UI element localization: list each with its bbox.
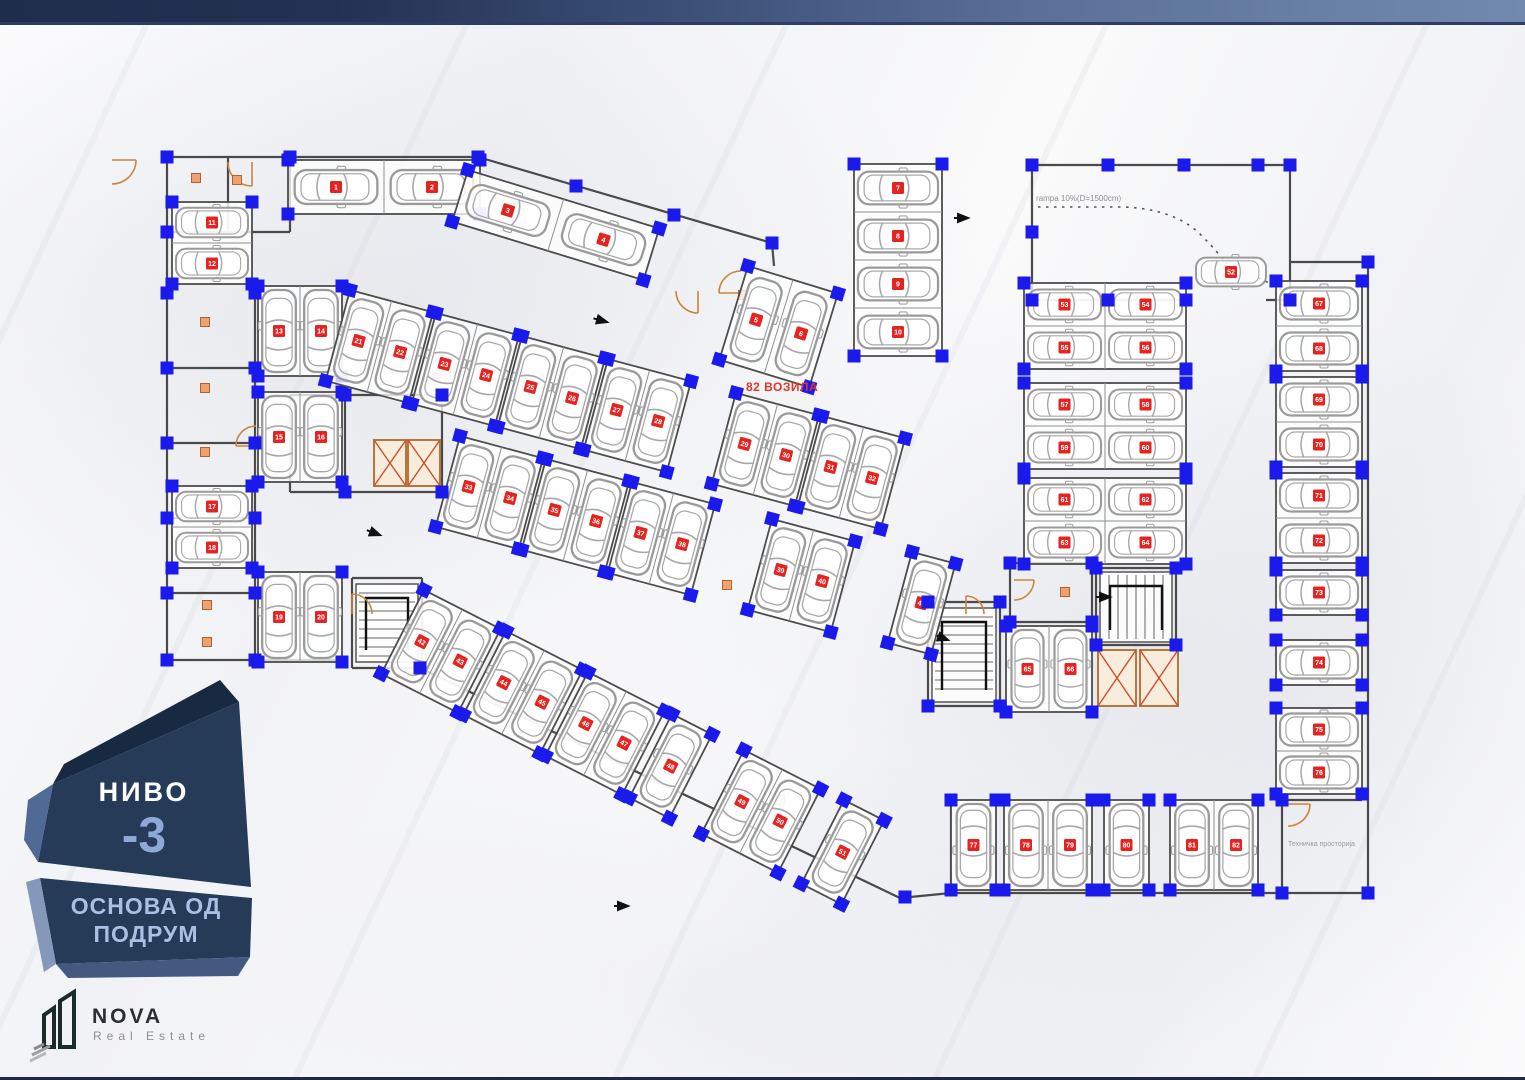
direction-arrow bbox=[614, 902, 628, 910]
structural-column bbox=[1164, 794, 1177, 807]
structural-column bbox=[166, 196, 179, 209]
elevator-shaft bbox=[1098, 650, 1136, 706]
structural-column bbox=[1180, 363, 1193, 376]
structural-column bbox=[249, 654, 262, 667]
structural-column bbox=[848, 350, 861, 363]
structural-column bbox=[1090, 639, 1103, 652]
parking-stall-group: 4950 bbox=[693, 741, 830, 881]
svg-text:72: 72 bbox=[1315, 538, 1323, 545]
structural-column bbox=[570, 180, 583, 193]
svg-text:10: 10 bbox=[894, 330, 902, 337]
structural-column bbox=[1180, 294, 1193, 307]
svg-text:9: 9 bbox=[896, 282, 900, 289]
level-value: -3 bbox=[20, 806, 268, 864]
parking-stall-group: 8182 bbox=[1164, 794, 1265, 897]
door-arc bbox=[112, 160, 136, 184]
nova-logo-icon bbox=[30, 985, 90, 1065]
structural-column bbox=[1356, 634, 1369, 647]
structural-column bbox=[336, 566, 349, 579]
structural-column bbox=[436, 389, 449, 402]
structural-column bbox=[1284, 159, 1297, 172]
svg-text:56: 56 bbox=[1142, 345, 1150, 352]
level-subtitle-line1: ОСНОВА ОД bbox=[20, 892, 272, 920]
svg-text:61: 61 bbox=[1061, 497, 1069, 504]
svg-text:70: 70 bbox=[1315, 442, 1323, 449]
parking-stall-group: 61626364 bbox=[1018, 472, 1193, 571]
structural-column bbox=[1018, 472, 1031, 485]
structural-column bbox=[249, 587, 262, 600]
structural-column bbox=[249, 437, 262, 450]
parking-stall-group: 7576 bbox=[1270, 702, 1369, 801]
structural-column bbox=[1356, 609, 1369, 622]
structural-column bbox=[1362, 887, 1375, 900]
svg-text:74: 74 bbox=[1315, 660, 1323, 667]
svg-text:12: 12 bbox=[208, 261, 216, 268]
room-label-square bbox=[1061, 588, 1070, 597]
structural-column bbox=[161, 362, 174, 375]
structural-column bbox=[1170, 562, 1183, 575]
svg-text:57: 57 bbox=[1061, 402, 1069, 409]
structural-column bbox=[1178, 159, 1191, 172]
structural-column bbox=[161, 151, 174, 164]
svg-text:82: 82 bbox=[1232, 843, 1240, 850]
structural-column bbox=[1086, 557, 1099, 570]
svg-text:16: 16 bbox=[317, 435, 325, 442]
structural-column bbox=[472, 151, 485, 164]
structural-column bbox=[998, 794, 1011, 807]
svg-text:69: 69 bbox=[1315, 397, 1323, 404]
parking-stall-group: 73 bbox=[1270, 564, 1369, 622]
parking-stall-group: 53545556 bbox=[1018, 277, 1193, 376]
parking-stall-group: 1718 bbox=[166, 480, 259, 575]
svg-text:67: 67 bbox=[1315, 301, 1323, 308]
logo-tagline: Real Estate bbox=[93, 1029, 210, 1043]
structural-column bbox=[336, 656, 349, 669]
parking-stall-group: 6566 bbox=[1000, 620, 1099, 719]
direction-arrow bbox=[954, 214, 968, 222]
door-arc bbox=[676, 291, 698, 313]
stairs bbox=[1100, 572, 1172, 642]
floor-plan-page: 1234567891011121314151617181920212223242… bbox=[0, 0, 1525, 1080]
structural-column bbox=[249, 287, 262, 300]
room-label-square bbox=[233, 176, 242, 185]
structural-column bbox=[249, 512, 262, 525]
structural-column bbox=[1018, 558, 1031, 571]
structural-column bbox=[1356, 679, 1369, 692]
structural-column bbox=[1252, 159, 1265, 172]
svg-text:54: 54 bbox=[1142, 302, 1150, 309]
structural-column bbox=[1270, 609, 1283, 622]
level-subtitle-line2: ПОДРУМ bbox=[20, 920, 272, 948]
structural-column bbox=[166, 480, 179, 493]
structural-column bbox=[936, 350, 949, 363]
door-arc bbox=[1014, 580, 1034, 600]
room-label-square bbox=[203, 601, 212, 610]
parking-stall-group: 1112 bbox=[166, 196, 259, 291]
structural-column bbox=[1086, 616, 1099, 629]
logo-name: NOVA bbox=[92, 1005, 163, 1029]
structural-column bbox=[1356, 275, 1369, 288]
svg-text:55: 55 bbox=[1061, 345, 1069, 352]
svg-text:59: 59 bbox=[1061, 445, 1069, 452]
structural-column bbox=[1284, 294, 1297, 307]
structural-column bbox=[1086, 884, 1099, 897]
direction-arrow bbox=[592, 315, 608, 326]
svg-text:64: 64 bbox=[1142, 540, 1150, 547]
svg-text:8: 8 bbox=[896, 234, 900, 241]
svg-text:53: 53 bbox=[1061, 302, 1069, 309]
structural-column bbox=[339, 486, 352, 499]
structural-column bbox=[668, 209, 681, 222]
room-label-square bbox=[201, 318, 210, 327]
vehicle-count-label: 82 ВОЗИЛА bbox=[746, 380, 818, 394]
structural-column bbox=[922, 700, 935, 713]
parking-stall-group: 1516 bbox=[252, 386, 349, 489]
structural-column bbox=[1270, 634, 1283, 647]
structural-column bbox=[436, 486, 449, 499]
ramp-label: rampa 10%(D=1500cm) bbox=[1036, 194, 1121, 203]
structural-column bbox=[1018, 377, 1031, 390]
structural-column bbox=[1018, 277, 1031, 290]
svg-text:1: 1 bbox=[334, 185, 338, 192]
parking-stall-group: 7879 bbox=[998, 794, 1099, 897]
structural-column bbox=[1270, 467, 1283, 480]
structural-column bbox=[994, 596, 1007, 609]
door-arc bbox=[1288, 804, 1310, 826]
svg-text:13: 13 bbox=[275, 329, 283, 336]
svg-text:66: 66 bbox=[1067, 667, 1075, 674]
structural-column bbox=[1276, 887, 1289, 900]
structural-column bbox=[161, 437, 174, 450]
structural-column bbox=[339, 389, 352, 402]
structural-column bbox=[945, 794, 958, 807]
structural-column bbox=[1180, 277, 1193, 290]
structural-column bbox=[1086, 794, 1099, 807]
parking-stall-group: 6768 bbox=[1270, 275, 1369, 378]
structural-column bbox=[1270, 371, 1283, 384]
svg-text:80: 80 bbox=[1123, 843, 1131, 850]
direction-arrow bbox=[365, 526, 381, 538]
structural-column bbox=[1086, 706, 1099, 719]
structural-column bbox=[922, 596, 935, 609]
structural-column bbox=[1143, 794, 1156, 807]
svg-text:76: 76 bbox=[1315, 770, 1323, 777]
structural-column bbox=[252, 566, 265, 579]
svg-text:60: 60 bbox=[1142, 445, 1150, 452]
svg-text:62: 62 bbox=[1142, 497, 1150, 504]
structural-column bbox=[766, 237, 779, 250]
structural-column bbox=[161, 587, 174, 600]
structural-column bbox=[848, 158, 861, 171]
svg-text:11: 11 bbox=[208, 220, 216, 227]
structural-column bbox=[1362, 256, 1375, 269]
svg-text:58: 58 bbox=[1142, 402, 1150, 409]
parking-stall-group: 74 bbox=[1270, 634, 1369, 692]
elevator-shaft bbox=[408, 440, 440, 486]
svg-text:19: 19 bbox=[275, 615, 283, 622]
ramp-path bbox=[1038, 207, 1226, 264]
structural-column bbox=[998, 884, 1011, 897]
tech-room-label: Техничка просторија bbox=[1288, 841, 1355, 848]
structural-column bbox=[1170, 639, 1183, 652]
structural-column bbox=[1270, 702, 1283, 715]
svg-text:75: 75 bbox=[1315, 727, 1323, 734]
parking-stall-group: 6970 bbox=[1270, 371, 1369, 474]
svg-text:15: 15 bbox=[275, 435, 283, 442]
structural-column bbox=[1026, 159, 1039, 172]
parking-stall-group: 52 bbox=[1196, 255, 1266, 290]
room-label-square bbox=[203, 638, 212, 647]
structural-column bbox=[246, 196, 259, 209]
parking-stall-group: 3940 bbox=[740, 511, 863, 640]
stairs bbox=[932, 608, 996, 702]
structural-column bbox=[1102, 294, 1115, 307]
structural-column bbox=[936, 158, 949, 171]
structural-column bbox=[1004, 557, 1017, 570]
nova-logo: NOVA Real Estate bbox=[30, 985, 260, 1070]
room-label-square bbox=[201, 448, 210, 457]
structural-column bbox=[1252, 884, 1265, 897]
elevator-shaft bbox=[374, 440, 406, 486]
structural-column bbox=[1004, 616, 1017, 629]
svg-text:78: 78 bbox=[1022, 843, 1030, 850]
structural-column bbox=[161, 226, 174, 239]
structural-column bbox=[1102, 159, 1115, 172]
structural-column bbox=[1143, 884, 1156, 897]
parking-stall-group: 78910 bbox=[848, 158, 949, 363]
door-arc bbox=[719, 271, 741, 293]
structural-column bbox=[1356, 564, 1369, 577]
structural-column bbox=[284, 151, 297, 164]
structural-column bbox=[899, 891, 912, 904]
structural-column bbox=[1356, 371, 1369, 384]
room-label-square bbox=[723, 581, 732, 590]
structural-column bbox=[994, 700, 1007, 713]
structural-column bbox=[161, 512, 174, 525]
structural-column bbox=[1164, 884, 1177, 897]
room-label-square bbox=[201, 384, 210, 393]
structural-column bbox=[1026, 226, 1039, 239]
svg-text:77: 77 bbox=[970, 843, 978, 850]
structural-column bbox=[249, 362, 262, 375]
structural-column bbox=[282, 208, 295, 221]
parking-stall-group: 57585960 bbox=[1018, 377, 1193, 476]
structural-column bbox=[246, 480, 259, 493]
structural-column bbox=[166, 562, 179, 575]
structural-column bbox=[945, 884, 958, 897]
svg-text:14: 14 bbox=[317, 329, 325, 336]
svg-text:18: 18 bbox=[208, 545, 216, 552]
svg-text:17: 17 bbox=[208, 504, 216, 511]
structural-column bbox=[1270, 275, 1283, 288]
structural-column bbox=[161, 654, 174, 667]
svg-text:68: 68 bbox=[1315, 346, 1323, 353]
svg-text:73: 73 bbox=[1315, 590, 1323, 597]
parking-stall-group: 1920 bbox=[252, 566, 349, 669]
structural-column bbox=[1270, 679, 1283, 692]
svg-text:81: 81 bbox=[1188, 843, 1196, 850]
structural-column bbox=[1180, 472, 1193, 485]
structural-column bbox=[1180, 377, 1193, 390]
structural-column bbox=[1270, 564, 1283, 577]
parking-stall-group: 7172 bbox=[1270, 467, 1369, 570]
structural-column bbox=[1098, 884, 1111, 897]
svg-text:52: 52 bbox=[1227, 270, 1235, 277]
structural-column bbox=[252, 386, 265, 399]
structural-column bbox=[1098, 794, 1111, 807]
parking-stall-group: 77 bbox=[945, 794, 1003, 897]
svg-text:7: 7 bbox=[896, 186, 900, 193]
structural-column bbox=[1252, 794, 1265, 807]
level-subtitle: ОСНОВА ОД ПОДРУМ bbox=[20, 892, 272, 948]
svg-text:2: 2 bbox=[430, 185, 434, 192]
structural-column bbox=[161, 287, 174, 300]
structural-column bbox=[1276, 794, 1289, 807]
svg-text:71: 71 bbox=[1315, 493, 1323, 500]
parking-stall-group: 56 bbox=[711, 258, 846, 395]
elevator-shaft bbox=[1140, 650, 1178, 706]
level-label: НИВО bbox=[20, 777, 268, 808]
structural-column bbox=[1356, 788, 1369, 801]
structural-column bbox=[414, 662, 427, 675]
structural-column bbox=[1026, 294, 1039, 307]
structural-column bbox=[1356, 467, 1369, 480]
svg-text:79: 79 bbox=[1066, 843, 1074, 850]
svg-text:63: 63 bbox=[1061, 540, 1069, 547]
svg-text:65: 65 bbox=[1024, 667, 1032, 674]
level-badge: НИВО -3 ОСНОВА ОД ПОДРУМ bbox=[20, 680, 280, 990]
structural-column bbox=[1356, 702, 1369, 715]
svg-text:20: 20 bbox=[317, 615, 325, 622]
parking-stall-group: 80 bbox=[1098, 794, 1156, 897]
room-label-square bbox=[192, 174, 201, 183]
structural-column bbox=[1018, 363, 1031, 376]
